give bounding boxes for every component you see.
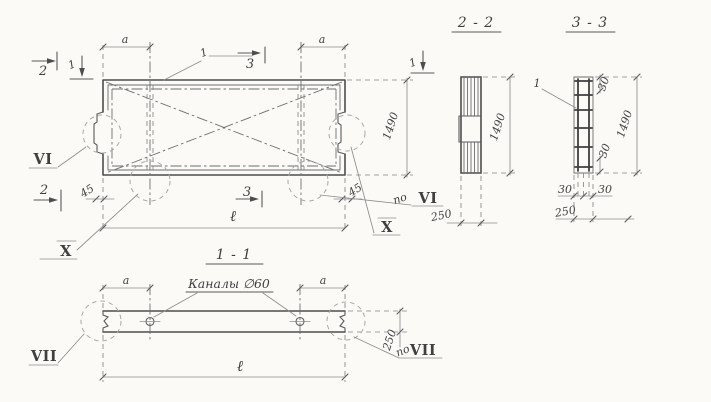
plan-left-keyway bbox=[94, 112, 103, 154]
section-3-3-dim-30-bl: 30 bbox=[558, 183, 572, 196]
plan-dim-a-right: a bbox=[319, 33, 326, 46]
section-3-3-dim-250: 250 bbox=[553, 203, 577, 220]
plan-callout-1: 1 bbox=[198, 45, 209, 60]
detail-label-vi-left: VI bbox=[32, 151, 52, 168]
plan-extension-lines bbox=[103, 44, 413, 231]
plan-dim-1490: 1490 bbox=[380, 111, 401, 142]
section-3-3: 3 - 3 1 30 1490 30 30 30 250 bbox=[534, 15, 643, 222]
section-3-3-dim-1490: 1490 bbox=[614, 109, 635, 140]
plan-callout1-leader bbox=[164, 56, 252, 80]
section-mark-3-bottom: 3 bbox=[236, 185, 262, 207]
x-left-leader bbox=[40, 194, 138, 259]
mark2-bot-label: 2 bbox=[39, 183, 48, 198]
mark3-top-label: 3 bbox=[246, 57, 254, 72]
mark1-right-arrow bbox=[420, 62, 426, 71]
section-1-1-ext-bottom bbox=[103, 335, 345, 382]
detail-label-x-left: X bbox=[60, 243, 72, 260]
section-3-3-dim-lines bbox=[556, 75, 637, 219]
channels-label: Каналы ∅60 bbox=[187, 276, 270, 291]
section-2-2-title: 2 - 2 bbox=[457, 15, 494, 31]
section-1-1-ext-right bbox=[348, 311, 407, 332]
section-2-2-extensions bbox=[461, 77, 516, 229]
section-1-1-left-notch bbox=[103, 311, 108, 332]
detail-circle-1-1-left bbox=[81, 301, 121, 341]
section-2-2-hatch bbox=[464, 78, 478, 172]
mark2-top-label: 2 bbox=[38, 64, 47, 79]
channels-leaders bbox=[154, 293, 296, 317]
mark1-left-arrow bbox=[79, 68, 85, 77]
drawing-sheet: a a 1 2 2 1 1 bbox=[0, 0, 711, 402]
mark2-bot-arrow bbox=[49, 197, 58, 202]
section-3-3-dim-30-mid: 30 bbox=[596, 142, 613, 160]
plan-dim-l: ℓ bbox=[230, 207, 236, 225]
plan-dim-a-left: a bbox=[122, 33, 129, 46]
mark1-right-label: 1 bbox=[407, 55, 418, 70]
plan-dim-45-left: 45 bbox=[77, 182, 97, 201]
plan-channel-centerlines bbox=[150, 42, 301, 205]
section-3-3-callout-leader bbox=[542, 89, 576, 108]
detail-label-x-right: X bbox=[381, 219, 393, 236]
mark3-top-arrow bbox=[252, 50, 261, 55]
section-3-3-mesh-bars bbox=[578, 79, 589, 171]
section-mark-2-top: 2 bbox=[32, 52, 57, 79]
mark3-bot-arrow bbox=[250, 196, 259, 201]
section-1-1-right-notch bbox=[340, 311, 345, 332]
plan-dim-45-right: 45 bbox=[345, 181, 365, 200]
plan-diagonals bbox=[106, 82, 342, 173]
section-3-3-outline bbox=[574, 77, 593, 173]
section-2-2-dim-1490: 1490 bbox=[487, 112, 508, 143]
section-3-3-dim-30-top: 30 bbox=[595, 75, 612, 93]
section-mark-1-right: 1 bbox=[407, 51, 434, 73]
section-1-1-dim-a-left: a bbox=[123, 274, 130, 287]
detail-label-vi-right: VI bbox=[417, 190, 437, 207]
section-3-3-dim-30-br: 30 bbox=[598, 183, 612, 196]
section-2-2-dim-lines bbox=[447, 77, 510, 223]
section-2-2-dim-250: 250 bbox=[429, 207, 453, 224]
section-1-1-dim-l: ℓ bbox=[237, 357, 243, 375]
section-1-1-dim-a-right: a bbox=[320, 274, 327, 287]
mark2-top-arrow bbox=[47, 58, 56, 63]
detail-label-vii-right: VII bbox=[409, 342, 436, 359]
detail-circle-left-keyway bbox=[83, 115, 121, 153]
plan-right-keyway bbox=[338, 112, 345, 154]
section-1-1: 1 - 1 a a Каналы ∅60 ℓ 250 bbox=[29, 247, 442, 382]
section-mark-2-bottom: 2 bbox=[34, 183, 61, 211]
technical-drawing-canvas: a a 1 2 2 1 1 bbox=[0, 0, 711, 402]
section-2-2-keyway-band bbox=[459, 116, 481, 142]
detail-circle-right-keyway bbox=[329, 115, 365, 151]
section-mark-1-left: 1 bbox=[66, 56, 93, 79]
plan-view: a a 1 2 2 1 1 bbox=[29, 33, 443, 260]
section-3-3-callout-1: 1 bbox=[534, 77, 541, 90]
mark3-bot-label: 3 bbox=[243, 185, 251, 200]
section-3-3-title: 3 - 3 bbox=[572, 15, 608, 31]
section-2-2-dim-ticks bbox=[458, 74, 513, 226]
plan-channel-hidden-lines bbox=[147, 85, 304, 170]
section-1-1-title: 1 - 1 bbox=[216, 247, 252, 263]
detail-label-vii-left: VII bbox=[30, 348, 57, 365]
section-mark-3-top: 3 bbox=[238, 47, 265, 72]
detail-circle-1-1-right bbox=[327, 302, 365, 340]
mark1-left-label: 1 bbox=[66, 57, 77, 72]
section-2-2: 2 - 2 1490 250 bbox=[429, 15, 516, 229]
